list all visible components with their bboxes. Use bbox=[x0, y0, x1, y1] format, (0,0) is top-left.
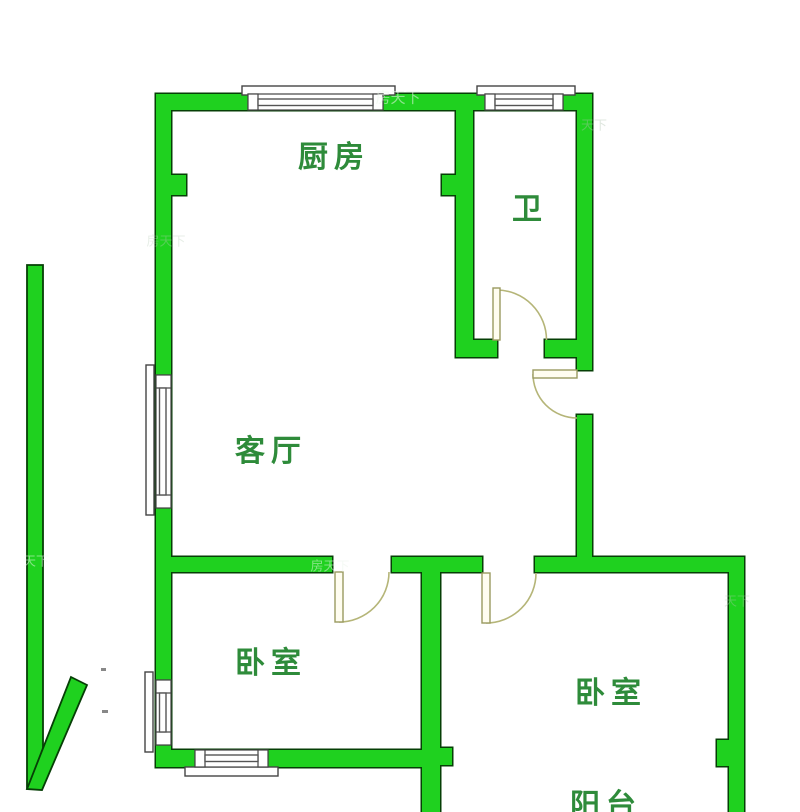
room-label-living-room: 客厅 bbox=[235, 437, 307, 467]
wall-segment bbox=[440, 748, 452, 765]
wall-segment bbox=[422, 572, 440, 812]
direction-arrow bbox=[27, 265, 87, 790]
bedroom-left-door bbox=[335, 572, 389, 622]
room-label-bedroom-right: 卧室 bbox=[575, 679, 647, 709]
floorplan-canvas: 厨房 卫 客厅 卧室 卧室 阳台 房天下 天下 房天下 天下 房天下 天下 bbox=[0, 0, 800, 812]
bathroom-door bbox=[493, 288, 547, 340]
bedroom-left-bottom-window bbox=[185, 750, 278, 776]
room-label-bathroom: 卫 bbox=[512, 195, 542, 225]
wall-segment bbox=[577, 415, 592, 572]
room-label-kitchen: 厨房 bbox=[298, 143, 370, 173]
bedroom-right-door bbox=[482, 573, 536, 623]
wall-segment bbox=[171, 175, 186, 195]
room-label-bedroom-left: 卧室 bbox=[235, 649, 307, 679]
dimension-dashes bbox=[101, 668, 108, 713]
entry-door bbox=[533, 370, 577, 418]
kitchen-window bbox=[242, 86, 395, 110]
wall-segment bbox=[717, 740, 730, 766]
bedroom-left-side-window bbox=[145, 672, 171, 752]
wall-segment bbox=[156, 557, 332, 572]
wall-segment bbox=[392, 557, 482, 572]
wall-segment bbox=[456, 340, 497, 357]
wall-segment bbox=[442, 175, 456, 195]
bathroom-window bbox=[477, 86, 575, 110]
room-label-balcony: 阳台 bbox=[570, 791, 642, 812]
wall-segment bbox=[535, 557, 744, 572]
wall-segment bbox=[577, 110, 592, 370]
wall-segment bbox=[456, 110, 473, 357]
wall-segment bbox=[729, 557, 744, 812]
floorplan-drawing bbox=[0, 0, 800, 812]
living-room-window bbox=[146, 365, 171, 515]
